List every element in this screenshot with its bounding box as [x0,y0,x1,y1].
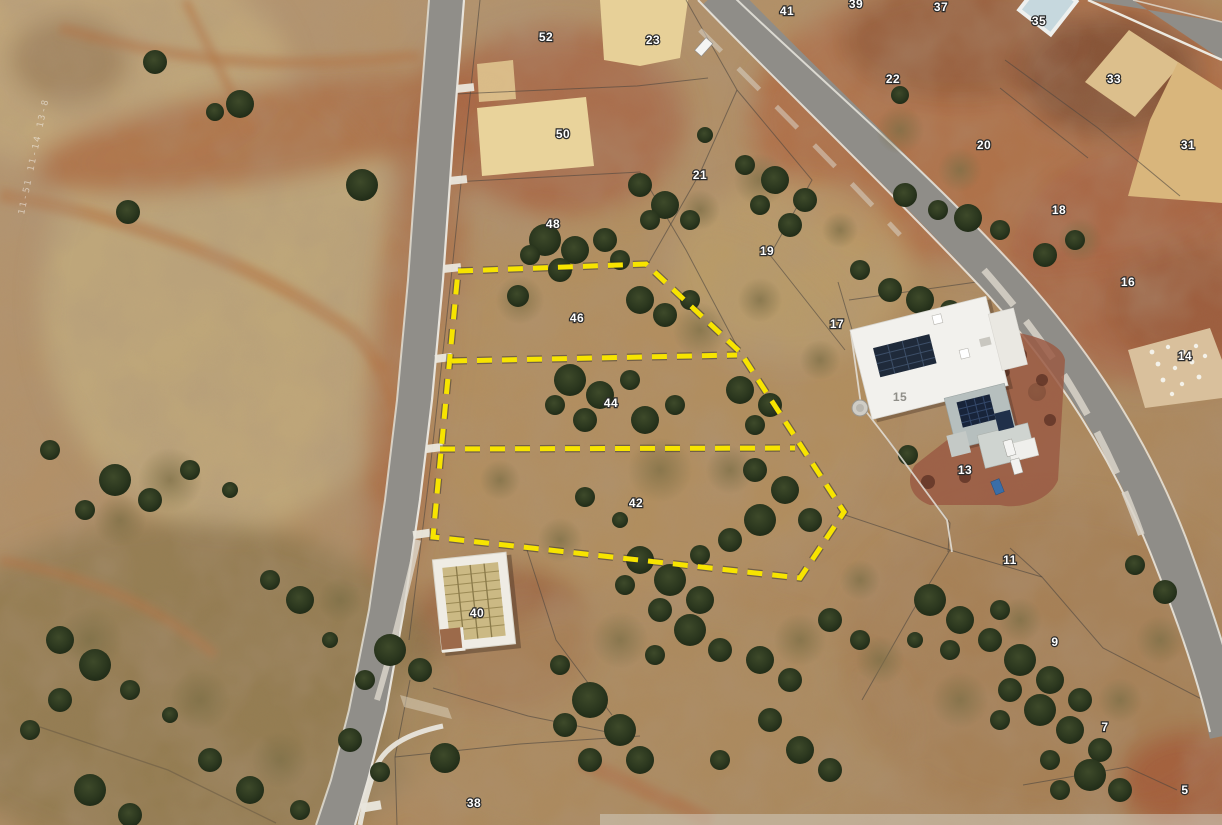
lot-label-19: 19 [760,244,774,258]
lot-label-9: 9 [1051,635,1058,649]
lot-label-18: 18 [1052,203,1066,217]
lot-label-7: 7 [1101,720,1108,734]
lot-label-20: 20 [977,138,991,152]
lot-label-21: 21 [693,168,707,182]
lot-label-44: 44 [604,396,618,410]
lot-label-22: 22 [886,72,900,86]
water-tank-top [856,404,864,412]
sand-pad-small [477,60,516,102]
lot-label-23: 23 [646,33,660,47]
aerial-map-canvas: 5250484644424038232119171513119754139373… [0,0,1222,825]
lot-label-39: 39 [849,0,863,11]
lot-label-48: 48 [546,217,560,231]
lot-label-17: 17 [830,317,844,331]
construction-site-lot40 [432,552,521,657]
imagery-seam [600,814,1222,825]
lot-label-37: 37 [934,0,948,14]
lot-label-16: 16 [1121,275,1135,289]
lot-label-42: 42 [629,496,643,510]
lot-label-41: 41 [780,4,794,18]
lot-label-31: 31 [1181,138,1195,152]
sand-pad-lot23 [600,0,688,66]
highlight-outline-stroke [440,448,795,449]
sand-pad-lot50 [477,97,594,176]
aerial-map: 5250484644424038232119171513119754139373… [0,0,1222,825]
lot-label-46: 46 [570,311,584,325]
lot-label-13: 13 [958,463,972,477]
lot-label-14: 14 [1178,349,1192,363]
lot-label-52: 52 [539,30,553,44]
lot-label-5: 5 [1181,783,1188,797]
lot-label-38: 38 [467,796,481,810]
lot-label-15: 15 [893,390,907,404]
lot-label-11: 11 [1003,553,1017,567]
lot-label-35: 35 [1032,14,1046,28]
lot-label-33: 33 [1107,72,1121,86]
lot-label-50: 50 [556,127,570,141]
lot-label-40: 40 [470,606,484,620]
